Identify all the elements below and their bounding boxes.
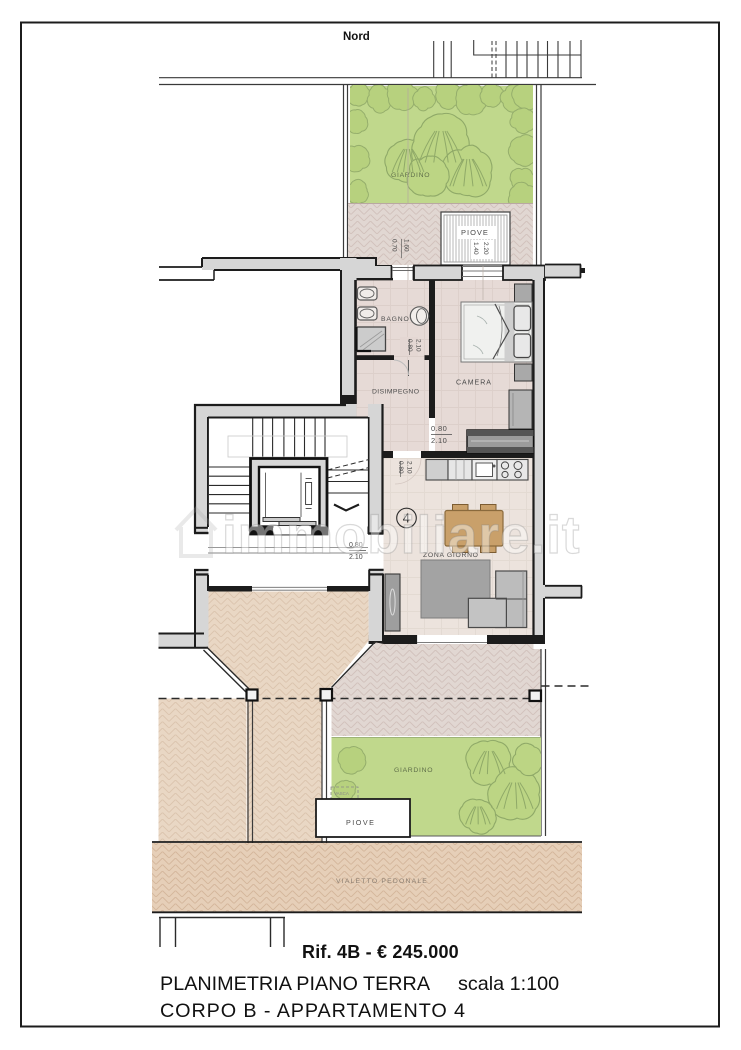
- svg-text:VASCA: VASCA: [334, 791, 349, 796]
- svg-text:CAMERA: CAMERA: [456, 380, 492, 387]
- svg-text:1.60: 1.60: [403, 239, 410, 252]
- svg-text:Rif. 4B - € 245.000: Rif. 4B - € 245.000: [302, 942, 459, 962]
- svg-text:scala 1:100: scala 1:100: [458, 973, 559, 995]
- svg-text:2.20: 2.20: [482, 242, 489, 255]
- svg-text:2.10: 2.10: [415, 339, 422, 352]
- svg-text:GIARDINO: GIARDINO: [394, 767, 433, 774]
- svg-text:GIARDINO: GIARDINO: [391, 172, 430, 179]
- svg-text:1.40: 1.40: [472, 242, 479, 255]
- svg-text:0.70: 0.70: [391, 239, 398, 252]
- svg-text:0.80: 0.80: [431, 424, 447, 433]
- svg-text:2.10: 2.10: [431, 436, 447, 445]
- svg-text:BAGNO: BAGNO: [381, 316, 410, 323]
- svg-text:2.10: 2.10: [406, 461, 413, 474]
- svg-text:PLANIMETRIA PIANO TERRA: PLANIMETRIA PIANO TERRA: [160, 973, 431, 995]
- svg-text:Nord: Nord: [343, 31, 370, 43]
- svg-text:PIOVE: PIOVE: [461, 228, 489, 237]
- svg-text:PIOVE: PIOVE: [346, 818, 375, 827]
- svg-text:immobiliare.it: immobiliare.it: [222, 506, 581, 565]
- svg-text:CORPO B - APPARTAMENTO 4: CORPO B - APPARTAMENTO 4: [160, 1000, 466, 1022]
- svg-text:DISIMPEGNO: DISIMPEGNO: [372, 389, 419, 396]
- svg-text:VIALETTO PEDONALE: VIALETTO PEDONALE: [336, 878, 428, 885]
